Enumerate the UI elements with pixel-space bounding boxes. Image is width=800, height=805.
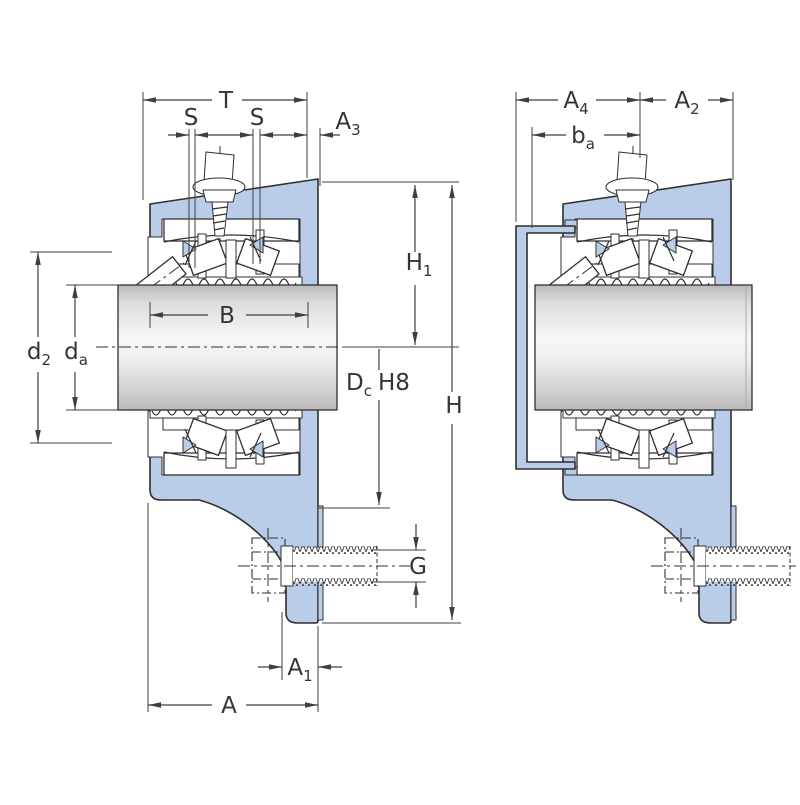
bolt-thread-top <box>293 546 377 554</box>
label-T: T <box>218 88 234 114</box>
label-da-sub: a <box>79 351 88 369</box>
label-H1: H1 <box>406 250 433 280</box>
label-A-main: A <box>221 693 237 719</box>
label-G: G <box>409 554 427 580</box>
label-S1: S <box>184 105 199 131</box>
guide-ring-top <box>226 240 236 278</box>
label-ba: ba <box>571 123 595 153</box>
label-S2: S <box>250 105 265 131</box>
label-H-main: H <box>445 393 462 419</box>
drawing-canvas: T S S A3 A4 A2 ba d2 da B DcH8 H1 H G A1… <box>0 0 800 800</box>
label-A: A <box>221 693 237 719</box>
label-ba-main: b <box>571 123 586 149</box>
guide-ring-bottom <box>226 430 236 468</box>
label-A2-sub: 2 <box>690 100 700 118</box>
label-B-main: B <box>219 303 235 329</box>
label-da: da <box>64 339 88 369</box>
bolt-thread-bottom <box>293 578 377 586</box>
label-S1-main: S <box>184 105 199 131</box>
shaft-right <box>535 285 752 410</box>
label-Dc-H8: DcH8 <box>346 370 410 400</box>
label-H: H <box>445 393 462 419</box>
label-d2-sub: 2 <box>42 351 52 369</box>
label-A1-sub: 1 <box>303 667 313 685</box>
technical-drawing: T S S A3 A4 A2 ba d2 da B DcH8 H1 H G A1… <box>0 0 800 800</box>
label-Dc-sub: c <box>364 382 372 400</box>
outer-ring-top <box>164 219 299 241</box>
label-Dc-main: D <box>346 370 364 396</box>
label-T-main: T <box>218 88 234 114</box>
label-A1: A1 <box>287 655 312 685</box>
label-H1-sub: 1 <box>423 262 433 280</box>
label-A4: A4 <box>563 88 588 118</box>
label-Dc-suffix: H8 <box>378 370 410 396</box>
label-A1-main: A <box>287 655 303 681</box>
label-A3-main: A <box>335 109 351 135</box>
label-B: B <box>219 303 235 329</box>
label-A2: A2 <box>674 88 699 118</box>
label-H1-main: H <box>406 250 423 276</box>
label-A2-main: A <box>674 88 690 114</box>
label-A3: A3 <box>335 109 360 139</box>
label-A3-sub: 3 <box>351 121 361 139</box>
label-ba-sub: a <box>586 135 595 153</box>
nipple-hex <box>203 190 236 202</box>
label-da-main: d <box>64 339 79 365</box>
label-A4-sub: 4 <box>579 100 589 118</box>
label-d2: d2 <box>27 339 51 369</box>
label-A4-main: A <box>563 88 579 114</box>
label-S2-main: S <box>250 105 265 131</box>
label-G-main: G <box>409 554 427 580</box>
label-d2-main: d <box>27 339 42 365</box>
